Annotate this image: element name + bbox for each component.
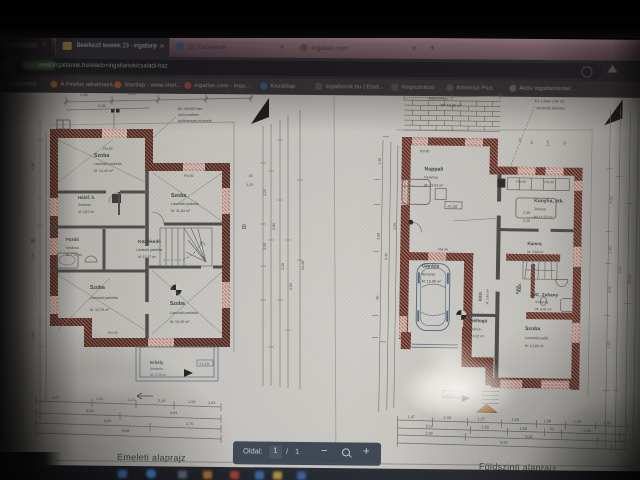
svg-text:1,93: 1,93 <box>208 401 215 405</box>
svg-text:Kerámia: Kerámia <box>150 367 163 371</box>
svg-text:M: 12,80 m²: M: 12,80 m² <box>525 344 545 348</box>
svg-text:Pld 80: Pld 80 <box>184 174 194 178</box>
svg-text:3,66: 3,66 <box>80 92 89 97</box>
svg-text:90: 90 <box>563 141 567 145</box>
svg-text:4,04: 4,04 <box>170 411 177 415</box>
svg-text:Hálóf. h.: Hálóf. h. <box>78 195 95 200</box>
svg-text:2,52: 2,52 <box>176 90 185 95</box>
svg-text:M: 14,42 m²: M: 14,42 m² <box>94 169 114 173</box>
svg-text:1,95: 1,95 <box>604 421 611 425</box>
svg-text:kerámiái kémény: kerámiái kémény <box>536 106 565 110</box>
svg-text:1,50: 1,50 <box>289 283 293 290</box>
svg-text:2,19: 2,19 <box>158 399 165 403</box>
svg-text:B2: 60/100 rkm: B2: 60/100 rkm <box>178 107 202 111</box>
svg-text:2,88: 2,88 <box>376 233 380 240</box>
svg-text:1,20: 1,20 <box>246 183 253 187</box>
svg-text:2,46: 2,46 <box>31 333 35 340</box>
svg-text:1,47: 1,47 <box>408 415 415 419</box>
svg-text:1,00: 1,00 <box>608 246 612 253</box>
svg-text:Pld 90: Pld 90 <box>516 180 526 184</box>
svg-text:M: 10,78 m²: M: 10,78 m² <box>90 308 110 312</box>
svg-text:6,95: 6,95 <box>500 441 507 445</box>
svg-text:6,80: 6,80 <box>104 419 111 423</box>
svg-text:2,05: 2,05 <box>546 140 550 146</box>
svg-text:90: 90 <box>530 140 534 144</box>
svg-text:2,70: 2,70 <box>186 422 193 426</box>
svg-text:1,03: 1,03 <box>188 400 195 404</box>
svg-text:Közlekedő: Közlekedő <box>138 239 161 244</box>
svg-text:Szoba: Szoba <box>171 193 186 199</box>
svg-text:2,20: 2,20 <box>523 219 530 223</box>
svg-text:1,21: 1,21 <box>263 189 267 196</box>
svg-text:Konyha, étk.: Konyha, étk. <box>534 198 564 204</box>
svg-text:Járólap: Járólap <box>534 207 546 211</box>
svg-text:+0,30: +0,30 <box>447 204 458 209</box>
svg-text:1,50: 1,50 <box>512 418 519 422</box>
svg-text:2,50: 2,50 <box>523 211 530 215</box>
svg-text:3,00: 3,00 <box>608 286 612 293</box>
svg-text:Közl.: Közl. <box>516 285 520 294</box>
svg-text:3,80: 3,80 <box>272 223 276 230</box>
svg-text:1,50: 1,50 <box>393 223 397 230</box>
svg-text:Kerámia: Kerámia <box>535 300 548 304</box>
svg-text:Laminált parketta: Laminált parketta <box>136 248 162 252</box>
svg-text:2,10: 2,10 <box>281 263 285 270</box>
svg-text:Hátsó terasz: Hátsó terasz <box>429 96 448 100</box>
svg-text:+1,15: +1,15 <box>199 361 210 366</box>
svg-text:M: 3,57 m²: M: 3,57 m² <box>78 210 95 214</box>
svg-text:K1: Laser LSK 20: K1: Laser LSK 20 <box>535 99 565 103</box>
svg-text:1,50: 1,50 <box>519 427 526 431</box>
svg-text:9,08: 9,08 <box>122 429 129 433</box>
svg-text:2,20: 2,20 <box>128 91 137 96</box>
svg-text:NF 19,96 m²: NF 19,96 m² <box>441 104 463 108</box>
svg-text:Pld 80: Pld 80 <box>103 147 113 151</box>
svg-text:2,40: 2,40 <box>583 429 590 433</box>
svg-text:Pld 90: Pld 90 <box>108 331 118 335</box>
svg-text:Kerámia: Kerámia <box>468 327 481 331</box>
svg-text:M: 11,84 m²: M: 11,84 m² <box>171 209 191 213</box>
svg-text:M: 2,40 m²: M: 2,40 m² <box>485 289 489 304</box>
svg-text:3,10: 3,10 <box>425 424 432 428</box>
svg-text:2,08: 2,08 <box>31 163 35 170</box>
svg-text:90: 90 <box>518 138 522 142</box>
svg-text:3,10: 3,10 <box>31 253 35 260</box>
svg-text:Kerámia: Kerámia <box>78 203 91 207</box>
svg-text:M: 15,98 m²: M: 15,98 m² <box>422 279 442 283</box>
svg-text:90: 90 <box>375 296 379 300</box>
svg-text:1,27: 1,27 <box>478 417 485 421</box>
svg-text:6,60: 6,60 <box>618 266 622 273</box>
svg-text:M: 4,12 m²: M: 4,12 m² <box>468 334 485 338</box>
svg-text:M: 7,70 m²: M: 7,70 m² <box>66 253 83 257</box>
svg-text:M: 2,60 m²: M: 2,60 m² <box>527 250 544 254</box>
svg-text:1,50: 1,50 <box>481 425 488 429</box>
svg-text:M: 4,73 m²: M: 4,73 m² <box>150 373 167 377</box>
svg-text:6,36: 6,36 <box>384 253 388 260</box>
svg-text:60: 60 <box>249 174 253 178</box>
svg-text:1,98: 1,98 <box>544 419 551 423</box>
svg-text:épitelemnek elvezető: épitelemnek elvezető <box>178 119 212 123</box>
svg-text:Laminált parketta: Laminált parketta <box>90 296 118 300</box>
svg-text:5,40: 5,40 <box>525 435 532 439</box>
svg-text:M: 15,39 m²: M: 15,39 m² <box>170 320 190 324</box>
svg-text:B: B <box>242 224 246 231</box>
svg-text:Garázs: Garázs <box>422 263 440 269</box>
svg-text:1,38: 1,38 <box>378 158 382 165</box>
svg-text:cell a csőben: cell a csőben <box>178 113 199 117</box>
svg-text:Erkély: Erkély <box>150 360 164 365</box>
svg-text:1,25: 1,25 <box>607 341 611 348</box>
svg-text:WC, Zuhany: WC, Zuhany <box>532 292 559 297</box>
svg-text:Laminált parketta: Laminált parketta <box>171 202 199 206</box>
svg-text:1,97: 1,97 <box>52 396 59 400</box>
svg-text:Nappali: Nappali <box>424 166 443 172</box>
svg-text:Szoba: Szoba <box>525 326 540 332</box>
svg-text:2,92: 2,92 <box>425 431 432 435</box>
svg-text:M: 23,04 m²: M: 23,04 m² <box>424 183 444 187</box>
svg-text:Kamra: Kamra <box>527 241 542 246</box>
svg-text:M: 4,41 m²: M: 4,41 m² <box>535 307 552 311</box>
svg-text:Pld 80: Pld 80 <box>420 149 430 153</box>
svg-text:Laminált parketta: Laminált parketta <box>170 311 198 315</box>
svg-text:Kerámia: Kerámia <box>66 246 79 250</box>
svg-text:M: 13,37 m²: M: 13,37 m² <box>138 255 157 259</box>
svg-text:5,04: 5,04 <box>86 409 93 413</box>
svg-text:Pld 90: Pld 90 <box>544 180 554 184</box>
svg-text:Közl.: Közl. <box>477 291 482 301</box>
svg-text:13,48: 13,48 <box>301 261 305 270</box>
svg-text:Szoba: Szoba <box>170 301 185 307</box>
svg-text:10,10: 10,10 <box>628 275 632 284</box>
svg-text:2,03: 2,03 <box>263 243 267 250</box>
svg-text:Kerámia: Kerámia <box>424 175 437 179</box>
svg-text:Szélfogó: Szélfogó <box>468 318 487 323</box>
svg-text:Fürdő: Fürdő <box>66 237 79 242</box>
svg-text:Kerámia: Kerámia <box>422 272 435 276</box>
svg-text:Szoba: Szoba <box>94 153 109 159</box>
svg-text:Pld 90: Pld 90 <box>438 248 448 252</box>
svg-text:1,25: 1,25 <box>574 420 581 424</box>
svg-text:Laminált padló: Laminált padló <box>525 336 548 340</box>
svg-text:Laminált parketta: Laminált parketta <box>94 162 122 166</box>
svg-text:5,86: 5,86 <box>98 103 107 108</box>
svg-text:1,86: 1,86 <box>222 89 231 94</box>
svg-text:Szoba: Szoba <box>90 285 105 291</box>
svg-text:70: 70 <box>549 427 553 431</box>
svg-text:1,21: 1,21 <box>609 196 613 203</box>
svg-text:B: B <box>31 238 35 245</box>
